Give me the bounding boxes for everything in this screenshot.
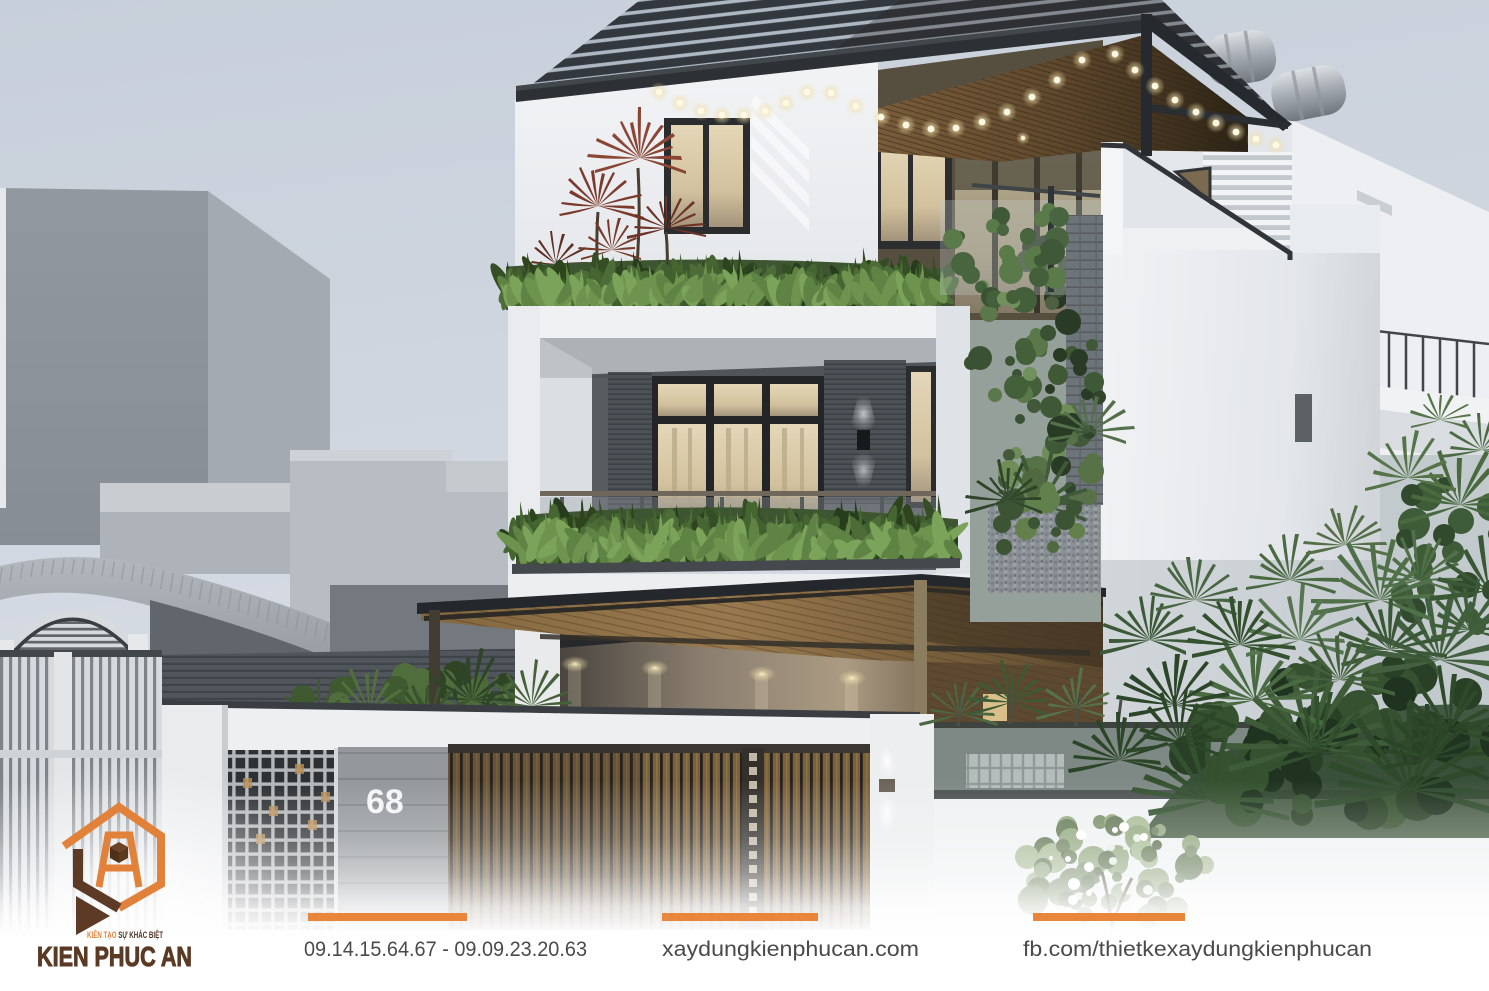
- svg-text:fb.com/thietkexaydungkienphuca: fb.com/thietkexaydungkienphucan: [1023, 938, 1372, 961]
- svg-text:KIEN PHUC AN: KIEN PHUC AN: [37, 941, 192, 972]
- svg-text:xaydungkienphucan.com: xaydungkienphucan.com: [662, 938, 919, 961]
- svg-text:KIÊN TẠO SỰ KHÁC BIỆT: KIÊN TẠO SỰ KHÁC BIỆT: [87, 929, 163, 940]
- svg-text:09.14.15.64.67 - 09.09.23.20.6: 09.14.15.64.67 - 09.09.23.20.63: [304, 938, 587, 961]
